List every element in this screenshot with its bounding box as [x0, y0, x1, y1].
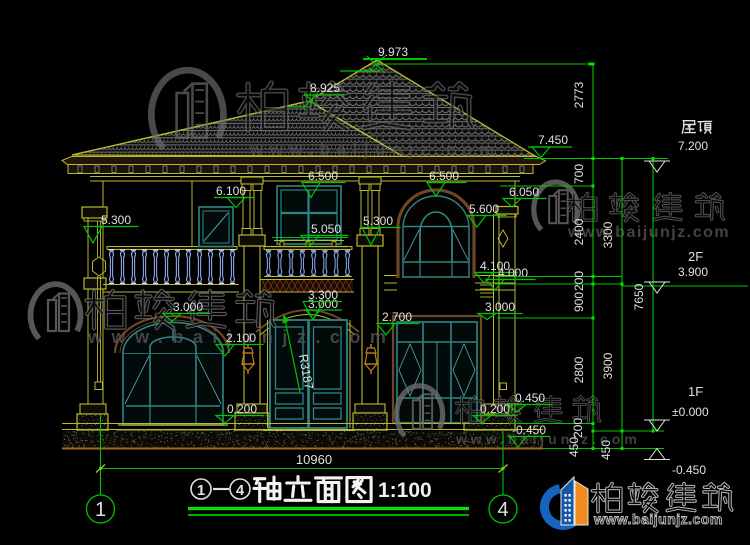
svg-text:7.200: 7.200	[678, 139, 708, 153]
svg-text:4: 4	[497, 499, 508, 521]
svg-text:200: 200	[572, 271, 586, 291]
svg-text:6.100: 6.100	[216, 184, 246, 198]
svg-text:2400: 2400	[572, 218, 586, 245]
svg-text:6.050: 6.050	[509, 185, 539, 199]
svg-text:6.500: 6.500	[308, 169, 338, 183]
svg-text:-0.450: -0.450	[512, 423, 546, 437]
svg-text:5.300: 5.300	[101, 213, 131, 227]
svg-text:2F: 2F	[688, 249, 703, 264]
svg-text:0.200: 0.200	[480, 402, 510, 416]
svg-text:900: 900	[572, 292, 586, 312]
svg-text:3300: 3300	[601, 221, 615, 248]
svg-text:200: 200	[571, 418, 585, 438]
svg-text:2.700: 2.700	[382, 310, 412, 324]
svg-text:1F: 1F	[688, 384, 703, 399]
svg-text:5.600: 5.600	[469, 202, 499, 216]
svg-text:1:100: 1:100	[378, 479, 432, 502]
svg-text:8.925: 8.925	[310, 81, 340, 95]
svg-text:5.300: 5.300	[363, 214, 393, 228]
svg-text:7650: 7650	[632, 283, 646, 310]
svg-text:www.baijunjz.com: www.baijunjz.com	[593, 511, 723, 527]
svg-text:1: 1	[197, 482, 205, 499]
svg-text:www.baijunjz.com: www.baijunjz.com	[249, 140, 501, 159]
svg-text:-0.450: -0.450	[672, 463, 706, 477]
svg-text:0.450: 0.450	[515, 391, 545, 405]
svg-text:www.baijunjz.com: www.baijunjz.com	[567, 224, 730, 241]
svg-text:4: 4	[236, 482, 245, 499]
svg-text:3900: 3900	[601, 352, 615, 379]
svg-text:0.200: 0.200	[227, 402, 257, 416]
svg-text:2800: 2800	[572, 356, 586, 383]
svg-text:5.050: 5.050	[311, 222, 341, 236]
svg-text:10960: 10960	[296, 452, 332, 467]
svg-text:2.100: 2.100	[226, 331, 256, 345]
svg-text:3.000: 3.000	[173, 300, 203, 314]
svg-text:3.000: 3.000	[308, 297, 338, 311]
svg-text:2773: 2773	[572, 81, 586, 108]
svg-text:±0.000: ±0.000	[672, 405, 709, 419]
svg-text:6.500: 6.500	[429, 169, 459, 183]
svg-text:9.973: 9.973	[378, 45, 408, 59]
svg-text:7.450: 7.450	[538, 133, 568, 147]
svg-text:3.900: 3.900	[678, 265, 708, 279]
svg-text:450: 450	[599, 440, 613, 460]
svg-text:4.000: 4.000	[498, 266, 528, 280]
svg-text:700: 700	[572, 164, 586, 184]
svg-text:1: 1	[95, 499, 106, 521]
svg-text:3.000: 3.000	[485, 300, 515, 314]
svg-text:450: 450	[567, 437, 581, 457]
